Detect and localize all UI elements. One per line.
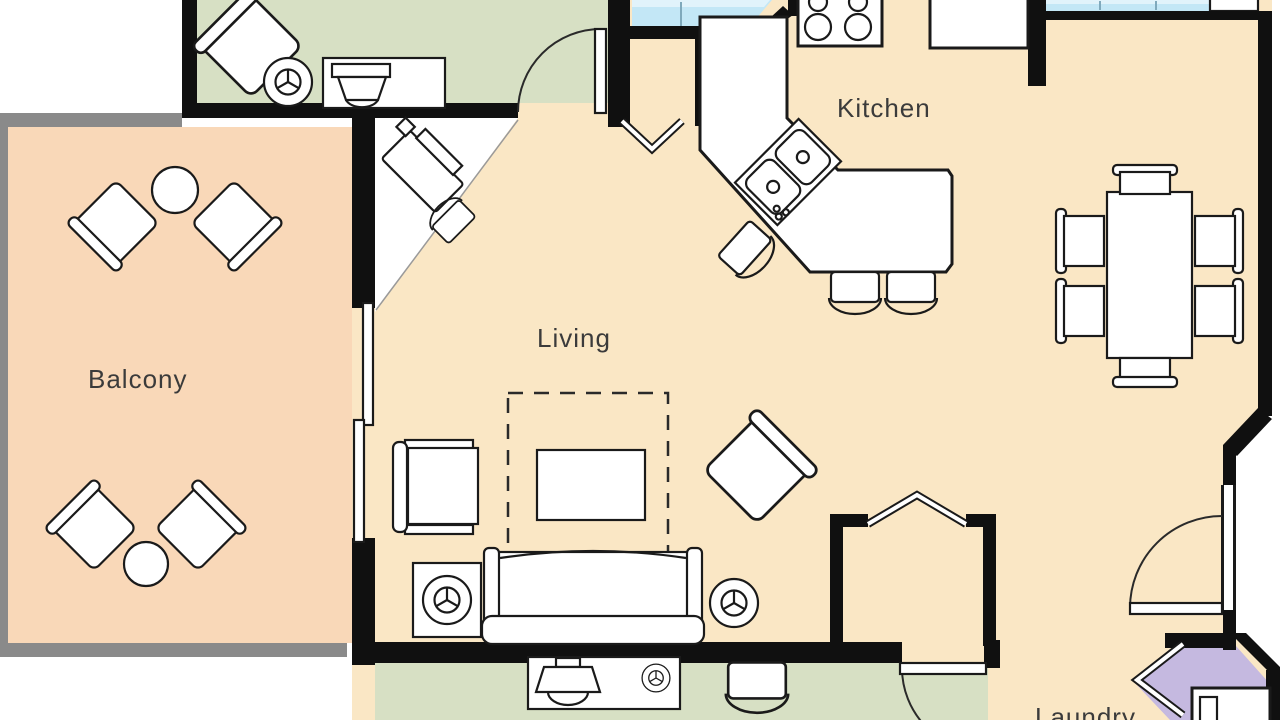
fan-icon: [710, 579, 758, 627]
dining-table: [1107, 192, 1192, 358]
wall-top-right: [1046, 11, 1258, 20]
counter-top: [930, 0, 1028, 48]
round-table: [152, 167, 198, 213]
wall-right: [1258, 11, 1272, 416]
dining-chair: [1113, 165, 1177, 194]
laundry-fixtures: [1192, 688, 1270, 720]
washer-door: [1200, 697, 1217, 720]
dining-chair: [1056, 209, 1104, 273]
wall-stub-kitchen: [1028, 0, 1046, 86]
fan-icon: [423, 576, 471, 624]
entry-opening: [1221, 485, 1237, 610]
window-ledge: [1210, 0, 1258, 11]
stove-icon: [798, 0, 882, 46]
wall-closet-right: [983, 514, 996, 646]
wall-balcony-upper: [352, 103, 375, 308]
floor-plan-svg: Balcony Living Kitchen Laundry: [0, 0, 1280, 720]
entry-door-leaf: [1130, 603, 1222, 614]
bedroom2-floor: [375, 663, 988, 720]
coffee-table: [537, 450, 645, 520]
living-label: Living: [537, 323, 611, 353]
wall-bedroom1-left: [182, 0, 197, 118]
armchair: [393, 440, 478, 534]
floor-plan: Balcony Living Kitchen Laundry: [0, 0, 1280, 720]
wall-closet-left: [830, 514, 843, 653]
sofa: [482, 548, 704, 644]
dining-chair: [1195, 209, 1243, 273]
kitchen-label: Kitchen: [837, 93, 931, 123]
dining-chair: [1056, 279, 1104, 343]
laundry-label: Laundry: [1035, 702, 1136, 720]
dining-chair: [1195, 279, 1243, 343]
wall-bedroom1-right: [608, 0, 630, 127]
bedroom2-door-leaf: [900, 663, 986, 674]
fan-icon: [642, 664, 670, 692]
fan-icon: [264, 58, 312, 106]
round-table: [124, 542, 168, 586]
bedroom1-door-leaf: [595, 29, 606, 113]
dining-chair: [1113, 358, 1177, 387]
balcony-label: Balcony: [88, 364, 188, 394]
